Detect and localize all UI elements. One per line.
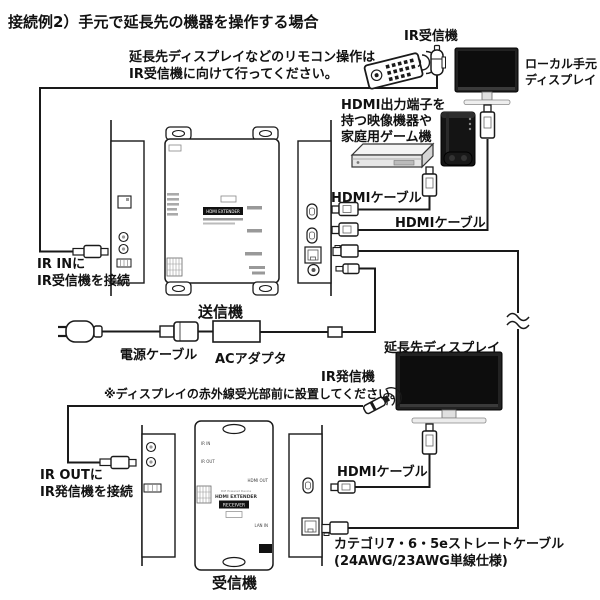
rx-ir-out-label: IR OUT bbox=[201, 459, 215, 464]
diagram-linework: HDMI EXTENDER bbox=[0, 0, 600, 600]
ir-out-note: IR OUTに IR発信機を接続 bbox=[40, 467, 133, 501]
ac-adapter-label: ACアダプタ bbox=[215, 348, 287, 367]
game-console bbox=[441, 112, 475, 166]
receiver-label: 受信機 bbox=[212, 572, 257, 593]
ir-receiver-label: IR受信機 bbox=[404, 25, 458, 44]
transmitter-label: 送信機 bbox=[198, 301, 243, 322]
gamepad-icon bbox=[444, 152, 472, 165]
hdmi-plug-dvd bbox=[423, 167, 437, 196]
rx-lan-in-label: LAN IN bbox=[255, 523, 269, 528]
ir-emitter-note: ※ディスプレイの赤外線受光部前に設置してください。 bbox=[104, 385, 402, 402]
tx-dip-switch bbox=[167, 258, 182, 276]
ir-emitter-label: IR発信機 bbox=[321, 366, 375, 385]
remote-note-line1: 延長先ディスプレイなどのリモコン操作は bbox=[129, 50, 375, 67]
power-plug bbox=[58, 321, 102, 342]
remote-note-line2: IR受信機に向けて行ってください。 bbox=[129, 67, 375, 84]
ir-receiver-device bbox=[431, 46, 446, 76]
local-display-label: ローカル手元 ディスプレイ bbox=[525, 56, 597, 88]
extension-display-tv bbox=[396, 352, 502, 423]
rx-poe-label: PoE Powered Device bbox=[221, 489, 252, 493]
receiver-top-view: IR IN IR OUT HDMI OUT PoE Powered Device… bbox=[195, 421, 273, 570]
hdmi-plug-ext-tv bbox=[423, 424, 437, 454]
local-display-tv bbox=[455, 48, 518, 105]
power-cable-label: 電源ケーブル bbox=[120, 344, 197, 363]
hdmi-cable-rx-label: HDMIケーブル bbox=[337, 461, 428, 480]
remote-note: 延長先ディスプレイなどのリモコン操作は IR受信機に向けて行ってください。 bbox=[129, 50, 375, 83]
lan-plug-tx bbox=[333, 245, 358, 257]
tx-badge-text: HDMI EXTENDER bbox=[206, 209, 240, 214]
ext-display-label: 延長先ディスプレイ bbox=[384, 337, 500, 356]
hdmi-plug-rx bbox=[331, 481, 355, 493]
cable-break-symbol bbox=[507, 314, 529, 329]
inline-dc-connector bbox=[328, 327, 342, 337]
hdmi-cable-1-label: HDMIケーブル bbox=[331, 187, 422, 206]
lan-plug-rx bbox=[322, 522, 348, 536]
transmitter-top-view: HDMI EXTENDER bbox=[165, 127, 279, 295]
page-title: 接続例2）手元で延長先の機器を操作する場合 bbox=[8, 11, 318, 32]
lan-cable-line-upper bbox=[358, 251, 518, 313]
rx-hdmi-out-label: HDMI OUT bbox=[247, 478, 268, 483]
connection-diagram: HDMI EXTENDER bbox=[0, 0, 600, 600]
transmitter-right-panel bbox=[298, 120, 331, 296]
rx-badge-text: RECEIVER bbox=[223, 503, 245, 509]
ir-in-note: IR INに IR受信機を接続 bbox=[37, 256, 130, 290]
hdmi-plug-2 bbox=[332, 223, 358, 236]
dc-plug-tx bbox=[336, 264, 359, 274]
hdmi-plug-local-tv bbox=[481, 105, 495, 138]
dvd-recorder bbox=[352, 144, 433, 167]
service-port bbox=[118, 196, 131, 208]
rx-ir-in-label: IR IN bbox=[201, 441, 210, 446]
receiver-left-panel bbox=[142, 425, 175, 566]
source-devices-label: HDMI出力端子を 持つ映像機器や 家庭用ゲーム機 bbox=[341, 98, 445, 146]
receiver-right-panel bbox=[289, 425, 322, 566]
ac-adapter-box bbox=[213, 321, 260, 342]
rx-product-label: HDMI EXTENDER bbox=[215, 494, 257, 500]
hdmi-cable-2-label: HDMIケーブル bbox=[395, 212, 486, 231]
cat-cable-label: カテゴリ7・6・5eストレートケーブル (24AWG/23AWG単線仕様) bbox=[334, 536, 564, 570]
power-cable-connector bbox=[160, 322, 198, 341]
